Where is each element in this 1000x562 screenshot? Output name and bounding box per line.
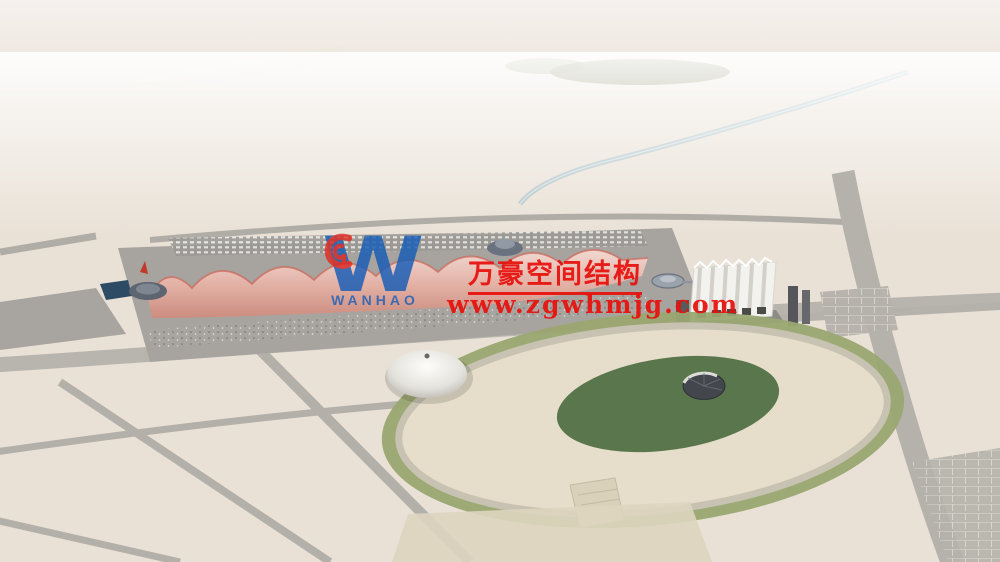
scene-svg [0, 0, 1000, 562]
glass-cone [683, 373, 725, 400]
pond [100, 280, 132, 300]
east-parking-lot [820, 286, 898, 338]
dome-apex [425, 354, 430, 359]
aerial-rendering: W WANHAO 万豪空间结构 www.zgwhmjg.com [0, 0, 1000, 562]
